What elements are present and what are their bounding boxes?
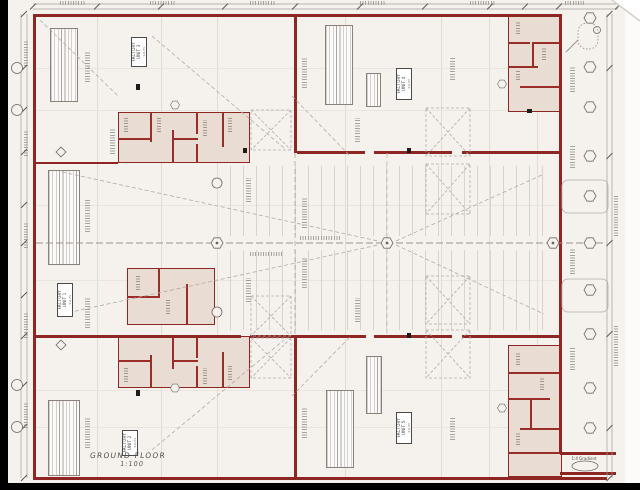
drawing-title: GROUND FLOOR — [89, 451, 174, 460]
grid-reference-bubbles — [12, 13, 601, 433]
unit-label-4: FACTORYUNIT 4sq.m — [396, 68, 412, 100]
ramp-turning-ellipse — [572, 461, 598, 471]
roof-bracing-lines — [40, 20, 544, 450]
plan-graphics — [0, 0, 640, 490]
ramp-gradient-label: 1:4 Gradient — [562, 456, 606, 461]
unit-label-1: FACTORYUNIT 1sq.m — [57, 283, 73, 317]
dimension-ticks — [21, 4, 621, 482]
drawing-scale: 1:100 — [89, 460, 174, 468]
revision-cloud — [566, 23, 598, 52]
unit-label-3: FACTORYUNIT 3sq.m — [131, 37, 147, 67]
floor-plan-screenshot: FACTORYUNIT 3sq.m FACTORYUNIT 4sq.m FACT… — [0, 0, 640, 490]
unit-label-5: FACTORYUNIT 5sq.m — [396, 412, 412, 444]
sheet-corner-fold — [612, 0, 640, 21]
dimension-chains — [21, 4, 618, 478]
drawing-title-block: GROUND FLOOR 1:100 — [90, 451, 174, 468]
setting-out-lines — [36, 153, 604, 335]
